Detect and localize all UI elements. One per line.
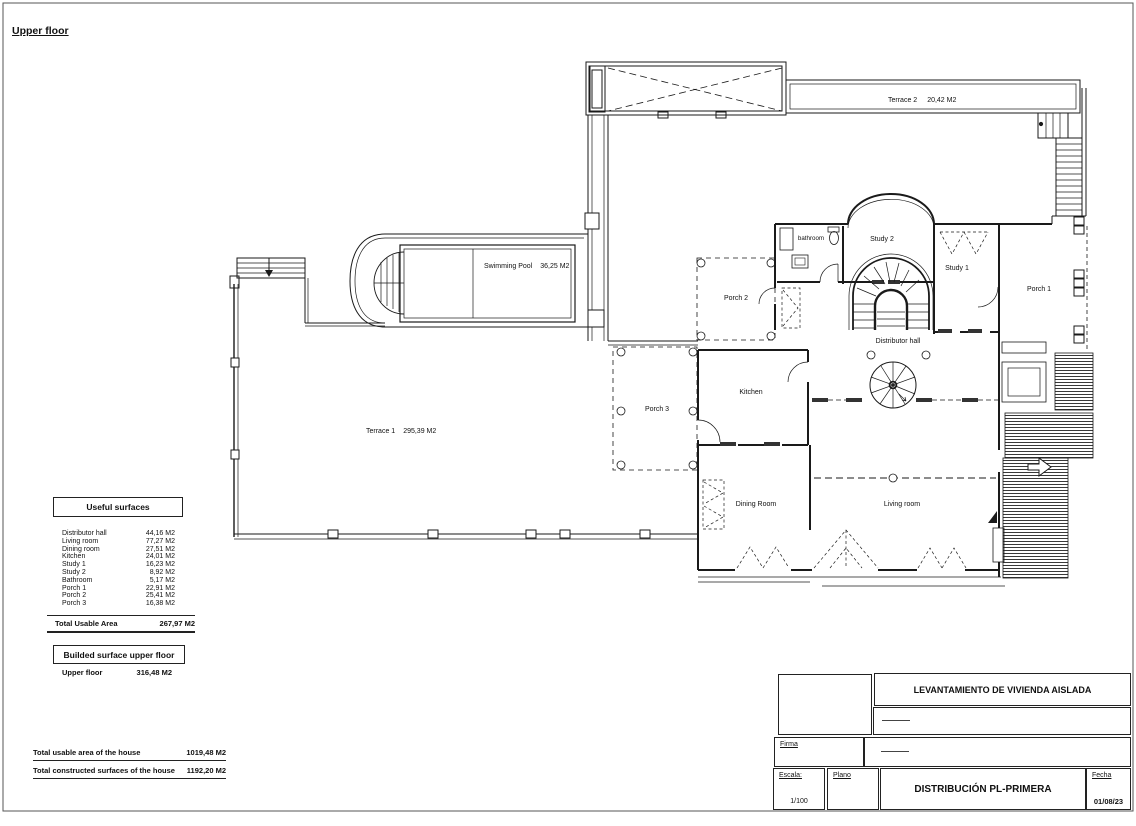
label-study2: Study 2 <box>870 236 894 243</box>
surface-row: Living room77,27 M2 <box>62 538 175 546</box>
divider <box>882 720 910 721</box>
plan-labels: Terrace 220,42 M2 Swimming Pool36,25 M2 … <box>366 97 1051 508</box>
divider <box>33 778 226 779</box>
built-surface-row: Upper floor 316,48 M2 <box>62 668 172 677</box>
surface-row: Bathroom5,17 M2 <box>62 577 175 585</box>
label-study1: Study 1 <box>945 265 969 272</box>
useful-surfaces-table: Distributor hall44,16 M2 Living room77,2… <box>62 530 175 608</box>
label-porch2: Porch 2 <box>724 295 748 302</box>
surface-row: Porch 316,38 M2 <box>62 600 175 608</box>
plan-linework <box>230 62 1093 586</box>
firma-box: Firma <box>774 737 864 767</box>
divider <box>47 631 195 633</box>
label-distributor-hall: Distributor hall <box>876 338 921 345</box>
surface-row: Porch 122,91 M2 <box>62 585 175 593</box>
firma-value-box <box>864 737 1131 767</box>
label-kitchen: Kitchen <box>739 389 762 396</box>
surface-row: Kitchen24,01 M2 <box>62 553 175 561</box>
surface-row: Dining room27,51 M2 <box>62 546 175 554</box>
plano-box: Plano <box>827 768 879 810</box>
total-constructed-house-row: Total constructed surfaces of the house … <box>33 766 226 775</box>
label-dining-room: Dining Room <box>736 501 777 508</box>
surface-row: Porch 225,41 M2 <box>62 592 175 600</box>
label-porch1: Porch 1 <box>1027 286 1051 293</box>
surface-row: Study 28,92 M2 <box>62 569 175 577</box>
built-surface-header: Builded surface upper floor <box>53 645 185 664</box>
project-title-box: LEVANTAMIENTO DE VIVIENDA AISLADA <box>874 673 1131 706</box>
label-terrace1: Terrace 1295,39 M2 <box>366 428 436 435</box>
escala-box: Escala: 1/100 <box>773 768 825 810</box>
label-bathroom: bathroom <box>798 235 824 242</box>
logo-box <box>778 674 872 735</box>
useful-surfaces-header: Useful surfaces <box>53 497 183 517</box>
divider <box>33 760 226 761</box>
surface-row: Distributor hall44,16 M2 <box>62 530 175 538</box>
fecha-box: Fecha 01/08/23 <box>1086 768 1131 810</box>
drawing-title-box: DISTRIBUCIÓN PL-PRIMERA <box>880 768 1086 810</box>
subtitle-box <box>873 707 1131 735</box>
total-usable-house-row: Total usable area of the house 1019,48 M… <box>33 748 226 757</box>
label-terrace2: Terrace 220,42 M2 <box>888 97 956 104</box>
label-swimming-pool: Swimming Pool36,25 M2 <box>484 263 570 270</box>
surface-row: Study 116,23 M2 <box>62 561 175 569</box>
total-usable-row: Total Usable Area 267,97 M2 <box>55 619 195 628</box>
divider <box>47 615 195 616</box>
divider <box>881 751 909 752</box>
label-living-room: Living room <box>884 501 920 508</box>
sheet-title: Upper floor <box>12 25 69 37</box>
label-porch3: Porch 3 <box>645 406 669 413</box>
drawing-sheet: Terrace 220,42 M2 Swimming Pool36,25 M2 … <box>0 0 1136 826</box>
